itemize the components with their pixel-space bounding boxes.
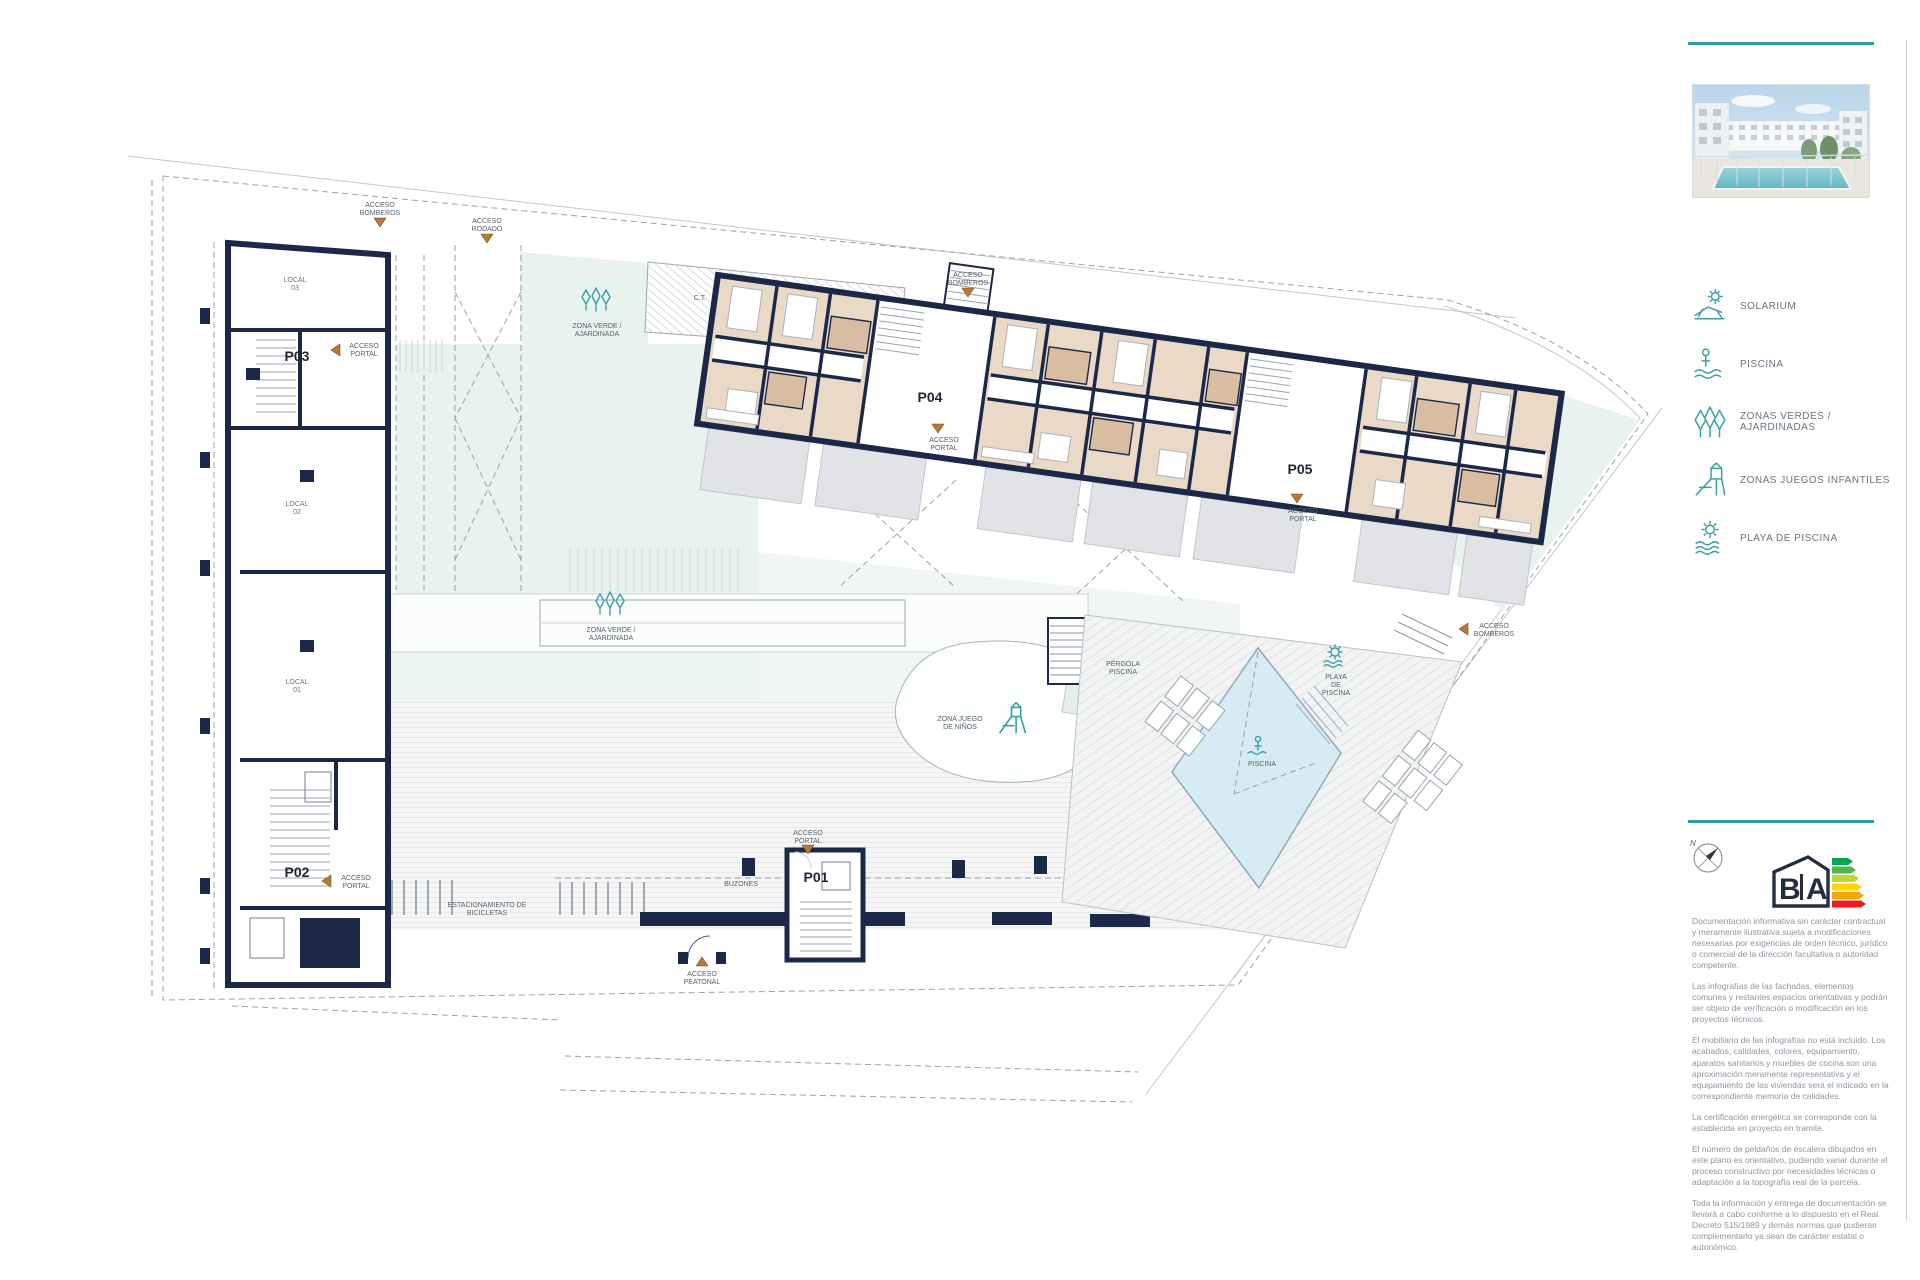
compass-icon: N [1686,836,1726,876]
legend-item-solarium: SOLARIUM [1692,288,1902,324]
label-pergola: PÉRGOLA [1106,659,1140,668]
energy-letter-b: B [1779,873,1801,906]
legend-label: ZONAS JUEGOS INFANTILES [1740,475,1890,486]
label-acceso-peatonal: ACCESO [687,971,717,978]
label-zona-verde-mid: ZONA VERDE / [586,627,635,634]
svg-text:PORTAL: PORTAL [794,838,821,845]
label-portal-p02: ACCESO [341,875,371,882]
label-portal-p03: ACCESO [349,343,379,350]
solarium-icon [1692,288,1728,324]
legend-label: ZONAS VERDES / AJARDINADAS [1740,411,1902,433]
svg-text:PISCINA: PISCINA [1322,690,1350,697]
disclaimer-paragraph: El número de peldaños de escalera dibuja… [1692,1144,1890,1188]
svg-text:PORTAL: PORTAL [350,351,377,358]
label-playa: PLAYA [1325,674,1347,681]
compass-n-label: N [1690,839,1696,848]
svg-text:DE NIÑOS: DE NIÑOS [943,722,977,731]
legend: SOLARIUM PISCINA ZONAS VERDES / AJARDINA… [1692,288,1902,578]
legend-label: PLAYA DE PISCINA [1740,533,1838,544]
label-portal-p01: ACCESO [793,830,823,837]
plan-label-p04: P04 [918,389,943,405]
label-acceso-bomberos-right: ACCESO [1479,623,1509,630]
plan-label-p03: P03 [285,348,310,364]
portal-p01 [787,850,863,960]
label-local01: LOCAL [286,679,309,686]
svg-text:BOMBEROS: BOMBEROS [360,210,401,217]
legend-item-piscina: PISCINA [1692,346,1902,382]
svg-text:01: 01 [293,687,301,694]
disclaimer-paragraph: Las infografías de las fachadas, element… [1692,981,1890,1025]
label-piscina: PISCINA [1248,761,1276,768]
label-portal-p05: ACCESO [1288,508,1318,515]
svg-text:BICICLETAS: BICICLETAS [467,910,508,917]
legend-label: PISCINA [1740,359,1784,370]
svg-text:DE: DE [1331,682,1341,689]
plan-label-p05: P05 [1288,461,1313,477]
svg-text:PORTAL: PORTAL [342,883,369,890]
playground-icon [1692,462,1728,498]
sidebar-rule-bottom [1688,820,1874,823]
label-acceso-rodado: ACCESO [472,218,502,225]
disclaimer-paragraph: Documentación informativa sin carácter c… [1692,916,1890,971]
disclaimer-text: Documentación informativa sin carácter c… [1692,916,1890,1263]
svg-text:AJARDINADA: AJARDINADA [589,635,634,642]
plan-label-p01: P01 [804,869,829,885]
label-acceso-bomberos-top: ACCESO [365,202,395,209]
project-photo [1692,84,1870,198]
label-bicicletas: ESTACIONAMIENTO DE [448,902,527,909]
disclaimer-paragraph: La certificación energética se correspon… [1692,1112,1890,1134]
label-zona-verde-top: ZONA VERDE / [572,323,621,330]
svg-text:RODADO: RODADO [472,226,503,233]
svg-text:AJARDINADA: AJARDINADA [575,331,620,338]
svg-text:PISCINA: PISCINA [1109,669,1137,676]
label-portal-p04: ACCESO [929,437,959,444]
apartment-buildings [688,231,1568,606]
svg-text:PEATONAL: PEATONAL [684,979,721,986]
svg-text:BOMBEROS: BOMBEROS [1474,631,1515,638]
pool-beach-icon [1692,520,1728,556]
sidebar-rule-top [1688,42,1874,45]
pool-icon [1692,346,1728,382]
label-buzones: BUZONES [724,881,758,888]
legend-item-zonas-verdes: ZONAS VERDES / AJARDINADAS [1692,404,1902,440]
site-plan: C.T. [0,0,1920,1280]
energy-scale-arrows [1832,858,1866,908]
plan-label-ct: C.T. [694,295,707,302]
svg-text:03: 03 [291,285,299,292]
trees-icon [1692,404,1728,440]
svg-text:PORTAL: PORTAL [930,445,957,452]
label-local03: LOCAL [284,277,307,284]
label-acceso-bomberos-mid: ACCESO [953,272,983,279]
energy-letter-a: A [1806,873,1828,906]
plan-label-p02: P02 [285,864,310,880]
sidebar-divider [1906,40,1907,1220]
svg-text:02: 02 [293,509,301,516]
energy-certificate-logo: B A [1770,850,1866,910]
legend-item-juegos: ZONAS JUEGOS INFANTILES [1692,462,1902,498]
svg-text:BOMBEROS: BOMBEROS [948,280,989,287]
floor-plan-page: C.T. [0,0,1920,1280]
disclaimer-paragraph: El mobiliario de las infografías no está… [1692,1035,1890,1101]
svg-text:PORTAL: PORTAL [1289,516,1316,523]
legend-label: SOLARIUM [1740,301,1796,312]
label-local02: LOCAL [286,501,309,508]
disclaimer-paragraph: Toda la información y entrega de documen… [1692,1198,1890,1253]
label-zona-juego: ZONA JUEGO [937,716,983,723]
legend-item-playa: PLAYA DE PISCINA [1692,520,1902,556]
